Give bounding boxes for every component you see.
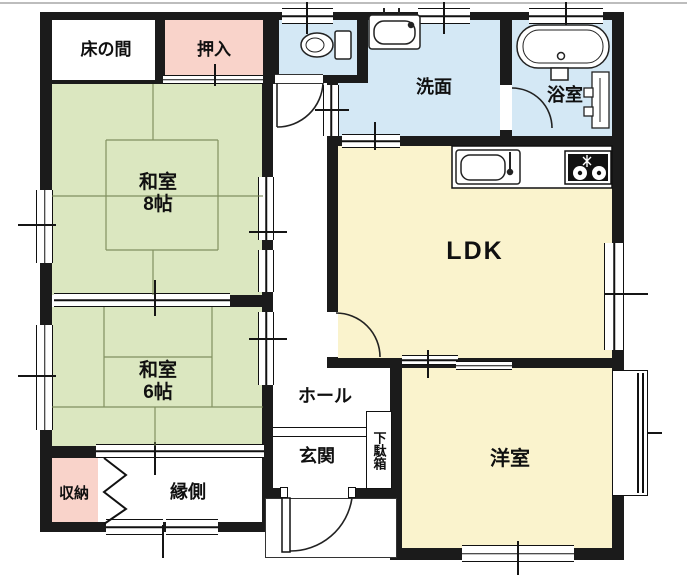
room-senmen-area2 bbox=[335, 75, 368, 136]
dimension-tick bbox=[565, 2, 567, 34]
oshiire-fusuma-front bbox=[163, 75, 263, 84]
toilet-door-arc bbox=[277, 83, 323, 127]
fusuma-sliding-door bbox=[54, 293, 230, 307]
entrance-porch bbox=[265, 498, 397, 558]
entrance-jamb bbox=[348, 487, 356, 498]
dimension-tick bbox=[517, 541, 519, 575]
folding-door-icon bbox=[104, 458, 126, 524]
room-label-tokonoma: 床の間 bbox=[56, 40, 156, 60]
window bbox=[604, 243, 624, 350]
dimension-tick bbox=[214, 64, 216, 86]
wall bbox=[262, 385, 273, 452]
dimension-tick bbox=[604, 293, 648, 295]
dimension-tick bbox=[162, 525, 164, 558]
room-yokushitsu-area bbox=[512, 20, 612, 138]
room-label-washitsu6: 和室6帖 bbox=[108, 360, 208, 405]
dimension-tick bbox=[427, 350, 429, 378]
dimension-tick bbox=[18, 224, 56, 226]
wall bbox=[262, 292, 273, 312]
room-label-hall: ホール bbox=[275, 386, 375, 407]
room-label-senmen: 洗面 bbox=[384, 77, 484, 98]
room-label-getabako: 下駄箱 bbox=[366, 413, 392, 487]
room-label-washitsu8: 和室8帖 bbox=[108, 172, 208, 217]
wall bbox=[357, 12, 368, 75]
sliding-door bbox=[258, 250, 274, 292]
floor-plan: 床の間 押入 和室8帖 和室6帖 洗面 浴室 LDK 洋室 ホール 玄関 下駄箱… bbox=[0, 0, 687, 578]
ldk-door-opening bbox=[327, 312, 338, 357]
dimension-tick bbox=[154, 442, 156, 475]
room-label-genkan: 玄関 bbox=[267, 446, 367, 467]
dimension-tick bbox=[249, 231, 287, 233]
bay-window bbox=[612, 370, 648, 496]
wall bbox=[52, 446, 98, 458]
room-label-yoshitsu: 洋室 bbox=[450, 448, 570, 472]
entrance-jamb bbox=[280, 487, 288, 498]
wall bbox=[262, 240, 273, 250]
image-border-line bbox=[0, 2, 687, 4]
window bbox=[166, 519, 218, 535]
dimension-tick bbox=[249, 338, 287, 340]
wall bbox=[262, 84, 273, 177]
dimension-tick bbox=[154, 280, 156, 316]
wall bbox=[228, 295, 263, 307]
room-label-oshiire: 押入 bbox=[164, 40, 264, 60]
dimension-tick bbox=[306, 2, 308, 34]
dimension-tick bbox=[374, 122, 376, 150]
window bbox=[36, 325, 53, 430]
wall bbox=[327, 136, 338, 312]
dimension-tick bbox=[315, 109, 349, 111]
room-label-ldk: LDK bbox=[415, 237, 535, 267]
window bbox=[36, 190, 53, 263]
dimension-tick bbox=[443, 2, 445, 34]
dimension-tick bbox=[18, 375, 56, 377]
sliding-door bbox=[96, 444, 264, 458]
sliding-door bbox=[402, 355, 458, 365]
sliding-door bbox=[342, 134, 400, 148]
tokonoma-edge-line bbox=[52, 80, 155, 84]
window bbox=[462, 545, 517, 562]
room-toilet-area bbox=[279, 20, 357, 75]
window bbox=[106, 519, 163, 535]
toilet-door-opening bbox=[275, 74, 323, 84]
sliding-door bbox=[258, 312, 274, 385]
sliding-door bbox=[456, 361, 512, 370]
wall bbox=[40, 12, 52, 532]
room-label-engawa: 縁側 bbox=[138, 482, 238, 503]
room-label-shuno: 収納 bbox=[50, 485, 98, 503]
room-label-yokushitsu: 浴室 bbox=[515, 85, 615, 106]
window bbox=[519, 545, 574, 562]
wall bbox=[500, 12, 512, 85]
genkan-step-line bbox=[273, 427, 366, 437]
